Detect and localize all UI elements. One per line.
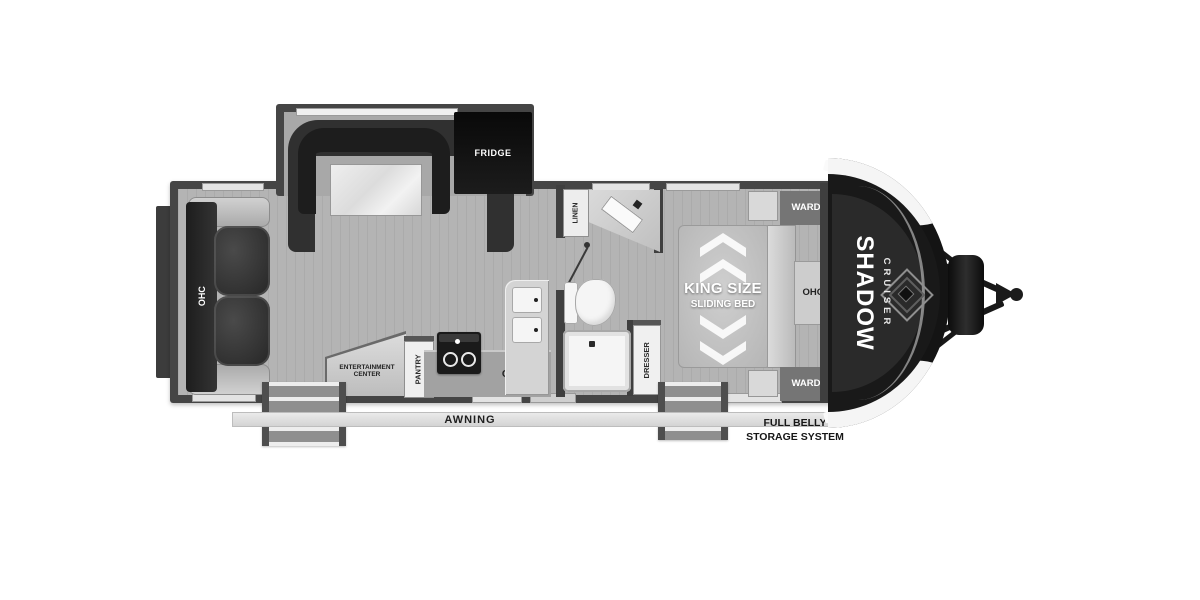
nightstand-bottom [748, 370, 778, 397]
shower-pan [563, 330, 631, 392]
linen-closet: LINEN [563, 189, 589, 237]
dresser: DRESSER [633, 320, 661, 395]
linen-label: LINEN [572, 202, 580, 223]
fridge: FRIDGE [454, 112, 532, 194]
front-cap: SHADOW CRUISER [828, 158, 950, 428]
slideout-window [296, 108, 458, 116]
king-bed-label: KING SIZE SLIDING BED [676, 280, 770, 311]
rv-floorplan-diagram: FRIDGE OHC ENTERTAINMENT CENTER PANTRY O… [0, 0, 1200, 600]
window-bedroom-top [666, 183, 740, 191]
stove-pilot-dot [455, 339, 460, 344]
wardrobe-top-label: WARD [791, 203, 820, 214]
nightstand-top [748, 191, 778, 221]
shower-drain [589, 341, 595, 347]
entry-steps-bedroom [658, 382, 728, 440]
bed-headboard [766, 225, 796, 368]
sink-basin-bottom [512, 317, 542, 343]
stove-burner-right [461, 352, 476, 367]
sofa-cushion-bottom [214, 296, 270, 366]
sofa-ohc-label-box: OHC [186, 250, 217, 342]
awning-label: AWNING [425, 414, 515, 427]
stove [437, 332, 481, 374]
pantry-label: PANTRY [415, 355, 424, 385]
window-bath-top [592, 183, 650, 191]
dinette-table [330, 164, 422, 216]
entertainment-center-label: ENTERTAINMENT CENTER [330, 364, 404, 379]
stove-burner-left [443, 352, 458, 367]
brand-cruiser-label: CRUISER [879, 238, 893, 348]
sink-faucet-dot-top [534, 298, 538, 302]
sink-basin-top [512, 287, 542, 313]
dresser-label: DRESSER [643, 342, 652, 378]
brand-shadow-label: SHADOW [849, 213, 879, 373]
bath-door-pivot [584, 242, 590, 248]
window-rear-top [202, 183, 264, 191]
sofa-ohc-label: OHC [196, 286, 206, 306]
fridge-label: FRIDGE [474, 148, 511, 158]
wardrobe-bottom-label: WARD [791, 379, 820, 390]
sink-faucet-dot-bottom [534, 328, 538, 332]
hitch-ball-icon [1010, 288, 1023, 301]
propane-tank-cover [948, 255, 984, 335]
sofa-cushion-top [214, 226, 270, 296]
